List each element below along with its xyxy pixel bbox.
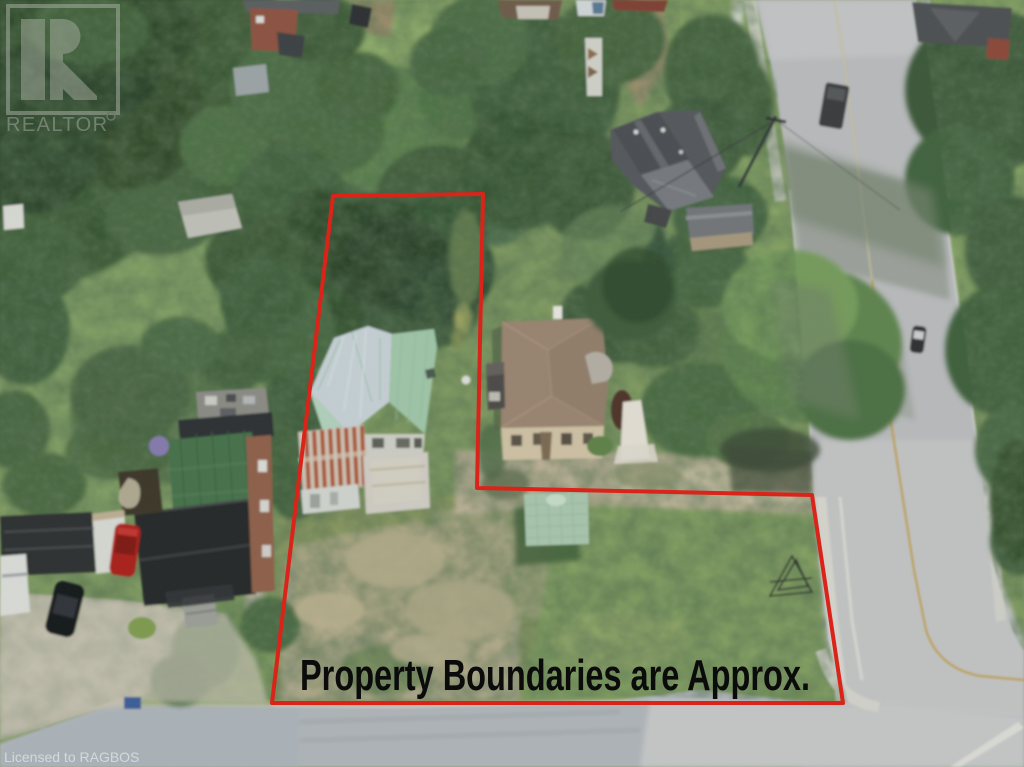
svg-text:Property Boundaries are Approx: Property Boundaries are Approx. — [300, 651, 810, 700]
svg-text:REALTOR: REALTOR — [6, 114, 108, 136]
svg-text:Licensed to RAGBOS: Licensed to RAGBOS — [4, 749, 139, 765]
